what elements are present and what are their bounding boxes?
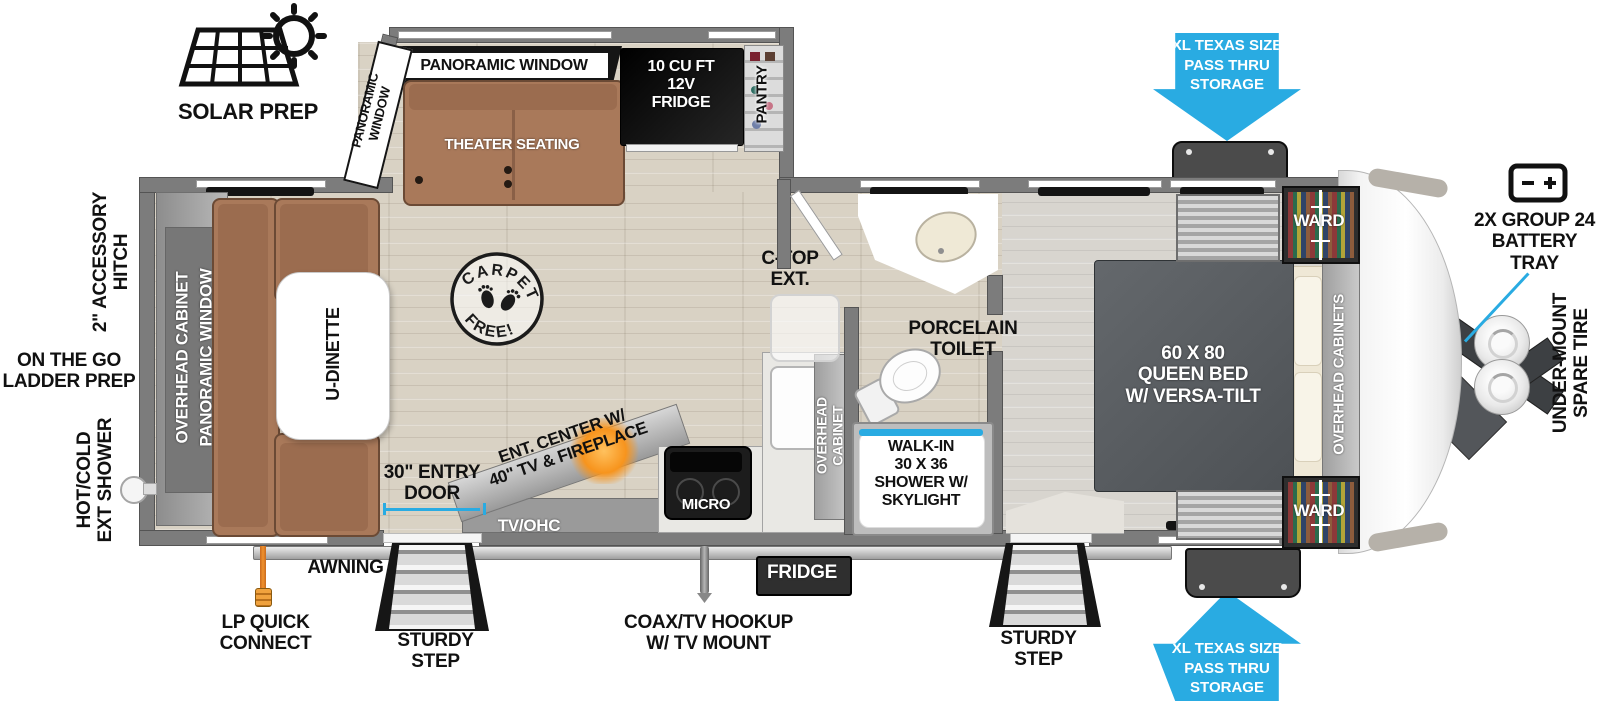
ward-top-label: WARD bbox=[1282, 211, 1356, 230]
bath-faucet bbox=[938, 248, 944, 254]
theater-seating-label: THEATER SEATING bbox=[410, 137, 614, 154]
rear-overhead-cabinet-label: OVERHEAD CABINET bbox=[172, 213, 191, 503]
spare-tire bbox=[1474, 359, 1530, 415]
slideout-window-sill bbox=[398, 31, 612, 39]
walk-in-shower-label: WALK-IN 30 X 36 SHOWER W/ SKYLIGHT bbox=[856, 438, 986, 510]
entry-door-threshold bbox=[383, 533, 482, 543]
c-top-ext-label: C-TOP EXT. bbox=[740, 248, 840, 291]
solar-panel-icon bbox=[168, 2, 328, 102]
exterior-fridge-label: FRIDGE bbox=[756, 562, 848, 583]
bath-wall-right-upper bbox=[988, 276, 1002, 314]
lp-quick-connect-nozzle bbox=[255, 588, 272, 607]
solar-prep-label: SOLAR PREP bbox=[163, 100, 333, 125]
window-sill bbox=[206, 536, 328, 544]
shower-skylight-strip bbox=[859, 429, 983, 436]
bath-wall-stub-top bbox=[778, 180, 790, 268]
coax-tv-hookup-label: COAX/TV HOOKUP W/ TV MOUNT bbox=[606, 612, 811, 655]
window bbox=[1038, 187, 1150, 196]
floorplan-canvas: SOLAR PREP XL TEXAS SIZE PASS THRU STORA… bbox=[0, 0, 1600, 701]
u-dinette-label: U-DINETTE bbox=[323, 269, 343, 439]
pass-thru-arrow-bottom: XL TEXAS SIZE PASS THRU STORAGE bbox=[1153, 591, 1301, 701]
ext-shower-stem bbox=[143, 483, 157, 495]
entry-door-measure-bar bbox=[383, 508, 480, 511]
ward-bottom-label: WARD bbox=[1282, 501, 1356, 520]
under-mount-spare-tire-label: UNDER-MOUNT SPARE TIRE bbox=[1550, 278, 1594, 448]
coax-tv-hookup-tip bbox=[697, 593, 712, 603]
pass-thru-top-label: XL TEXAS SIZE PASS THRU STORAGE bbox=[1153, 36, 1301, 95]
kitchen-overhead-cabinet-label: OVERHEAD CABINET bbox=[814, 361, 845, 511]
entry-door-label: 30" ENTRY DOOR bbox=[372, 462, 492, 505]
coax-tv-hookup-post bbox=[700, 546, 709, 594]
sturdy-step-left-label: STURDY STEP bbox=[378, 630, 493, 673]
awning-label: AWNING bbox=[293, 557, 398, 578]
entry-steps-treads bbox=[389, 545, 475, 629]
dresser-top bbox=[1176, 194, 1280, 262]
battery-icon bbox=[1506, 158, 1570, 206]
dresser-bottom bbox=[1176, 490, 1284, 540]
pillow bbox=[1294, 276, 1322, 366]
pass-thru-arrow-top: XL TEXAS SIZE PASS THRU STORAGE bbox=[1153, 33, 1301, 141]
dinette-sofa-back bbox=[212, 198, 280, 537]
pass-thru-bottom-label: XL TEXAS SIZE PASS THRU STORAGE bbox=[1153, 639, 1301, 698]
queen-bed-label: 60 X 80 QUEEN BED W/ VERSA-TILT bbox=[1095, 343, 1291, 407]
dinette-sofa-bottom-arm bbox=[274, 433, 380, 537]
bedroom-steps-treads bbox=[1003, 545, 1087, 625]
lp-quick-connect-label: LP QUICK CONNECT bbox=[193, 612, 338, 655]
bedroom-door-threshold bbox=[1010, 533, 1092, 543]
fridge-12v-shelf bbox=[626, 144, 738, 152]
ext-shower-label: HOT/COLD EXT SHOWER bbox=[74, 395, 118, 565]
panoramic-window-top-label: PANORAMIC WINDOW bbox=[402, 57, 606, 75]
fridge-12v-label: 10 CU FT 12V FRIDGE bbox=[622, 58, 740, 112]
c-top-ext-surface bbox=[770, 294, 840, 362]
porcelain-toilet-label: PORCELAIN TOILET bbox=[898, 318, 1028, 361]
pillow bbox=[1294, 372, 1322, 462]
lp-quick-connect-stem bbox=[260, 546, 266, 590]
micro-label: MICRO bbox=[666, 497, 746, 514]
pantry-label: PANTRY bbox=[755, 19, 772, 169]
tv-ohc-label: TV/OHC bbox=[474, 516, 584, 535]
bed-overhead-cabinets-label: OVERHEAD CABINETS bbox=[1332, 259, 1349, 489]
ladder-prep-label: ON THE GO LADDER PREP bbox=[0, 350, 138, 393]
accessory-hitch-label: 2" ACCESSORY HITCH bbox=[90, 177, 134, 347]
sturdy-step-right-label: STURDY STEP bbox=[981, 628, 1096, 671]
battery-tray-label: 2X GROUP 24 BATTERY TRAY bbox=[1462, 210, 1600, 274]
pass-thru-storage-box-bottom bbox=[1185, 548, 1301, 598]
